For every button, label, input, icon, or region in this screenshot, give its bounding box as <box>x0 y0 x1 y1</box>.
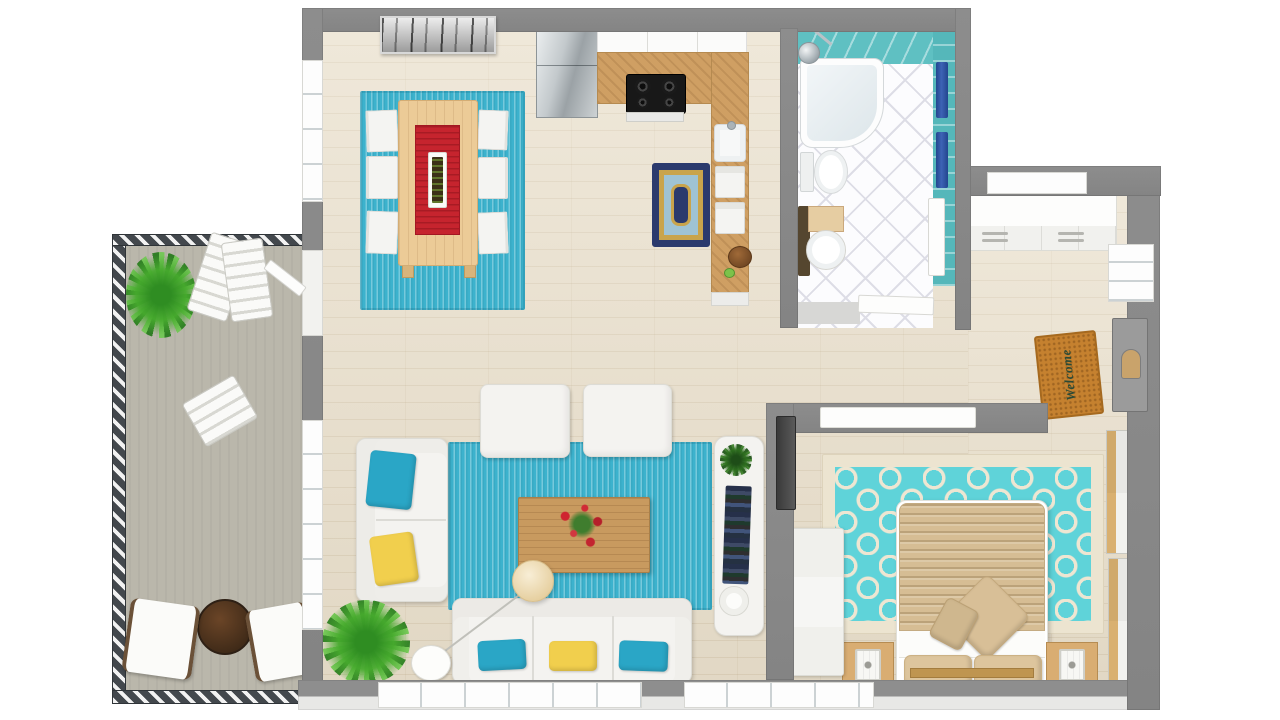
window-entry-top <box>987 172 1087 194</box>
towel-1 <box>936 62 948 118</box>
sofa-pillow-teal-1 <box>477 639 527 671</box>
floor-lamp-base <box>411 645 451 681</box>
dishwasher-drawer-2 <box>715 202 745 234</box>
wall-art <box>380 16 496 54</box>
welcome-mat-text: Welcome <box>1058 348 1079 401</box>
dishwasher-drawer-1 <box>715 166 745 198</box>
dining-chair-left-3 <box>365 210 398 254</box>
floorplan-scene: Welcome <box>0 0 1280 720</box>
loveseat-pillow-yellow <box>369 531 420 587</box>
wall-bathroom-right <box>955 8 971 330</box>
bathroom-door-leaf-2 <box>858 295 935 316</box>
oven-front <box>626 112 684 122</box>
entry-closet <box>967 195 1117 251</box>
sofa-seam-2 <box>612 616 614 682</box>
loveseat-pillow-teal <box>365 450 417 511</box>
front-door-arch-window <box>1121 349 1141 379</box>
lime-fruit <box>724 268 735 278</box>
window-left-lower <box>302 420 323 630</box>
window-bottom-2 <box>684 682 874 708</box>
table-lamp-left <box>855 649 881 681</box>
headboard <box>910 668 1034 678</box>
ottoman-1 <box>480 384 570 458</box>
refrigerator <box>536 20 598 118</box>
sofa-pillow-teal-2 <box>618 640 668 672</box>
front-door <box>1112 318 1148 412</box>
dining-chair-right-1 <box>477 109 508 150</box>
window-bottom-1 <box>378 682 642 708</box>
loveseat-seam <box>376 519 446 521</box>
bedroom-door-leaf <box>820 407 976 428</box>
towel-2 <box>936 132 948 188</box>
balcony-palm-plant <box>126 252 196 338</box>
console-books <box>722 486 751 585</box>
closet-handle-2 <box>1058 232 1084 235</box>
vanity-counter <box>808 206 844 232</box>
table-lamp-right <box>1059 649 1085 681</box>
kitchen-rug-medallion <box>671 184 691 226</box>
floor-lamp-shade <box>512 560 554 602</box>
wall-bathroom-left <box>780 28 798 328</box>
toilet-bowl <box>814 150 848 194</box>
dining-chair-right-3 <box>477 211 508 254</box>
patio-table <box>197 599 253 655</box>
window-left-upper <box>302 60 323 202</box>
vanity-sink <box>806 230 846 270</box>
balcony-door-opening <box>302 250 323 336</box>
centerpiece-moss <box>432 157 443 203</box>
living-room-fern <box>322 600 410 684</box>
toilet-tank <box>800 152 814 192</box>
console-speaker <box>719 586 749 616</box>
closet-handle-1 <box>982 232 1008 235</box>
dining-chair-left-1 <box>365 109 398 152</box>
counter-end-cap <box>711 292 749 306</box>
cooktop <box>626 74 686 114</box>
wall-tv <box>776 416 796 510</box>
patio-chair-left <box>121 597 201 680</box>
window-right <box>1108 244 1154 302</box>
dresser <box>790 528 844 676</box>
console-plant <box>720 444 752 476</box>
bathtub-basin <box>807 65 877 141</box>
dining-chair-left-2 <box>366 156 398 199</box>
ottoman-2 <box>583 384 672 457</box>
sofa-pillow-yellow <box>549 641 597 671</box>
bathroom-door-leaf <box>928 198 945 276</box>
balcony-railing-left <box>112 234 126 704</box>
dining-chair-right-2 <box>478 157 508 199</box>
sink-faucet <box>727 121 736 130</box>
sofa-seam-1 <box>532 616 534 682</box>
shower-head <box>798 42 820 64</box>
coffee-table-flowers <box>554 500 610 554</box>
fruit-bowl <box>728 246 752 268</box>
